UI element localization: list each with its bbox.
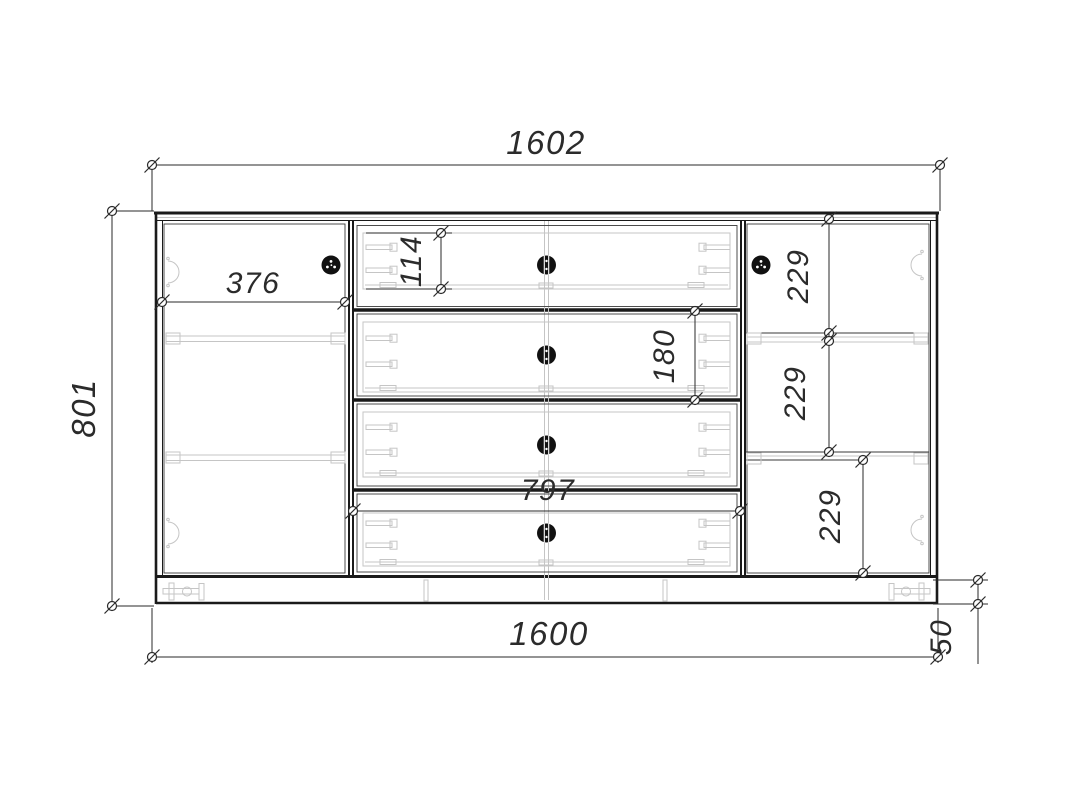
plinth-and-legs bbox=[163, 580, 930, 601]
drawer-knob bbox=[537, 436, 556, 455]
dimension-overall-width-bottom: 1600 bbox=[145, 608, 946, 665]
dim-label-plinth-height: 50 bbox=[925, 619, 958, 655]
drawer-knob bbox=[537, 524, 556, 543]
door-knob bbox=[752, 256, 771, 275]
left-shelf-bottom bbox=[166, 452, 345, 463]
dimension-top-drawer-box-height: 114 bbox=[366, 226, 452, 297]
dimension-right-gap-middle: 229 bbox=[779, 333, 837, 460]
dim-label-second-drawer-height: 180 bbox=[648, 329, 681, 384]
hinge-icon bbox=[911, 250, 923, 280]
hinge-icon bbox=[911, 515, 923, 545]
dim-label-right-gap-middle: 229 bbox=[779, 366, 812, 422]
dimension-overall-width-top: 1602 bbox=[145, 124, 948, 211]
leg-leveler-right bbox=[889, 583, 930, 600]
dim-label-overall-width-top: 1602 bbox=[506, 124, 585, 161]
dim-label-drawer-section-width: 797 bbox=[521, 474, 576, 507]
plinth-supports bbox=[424, 580, 667, 601]
furniture-technical-drawing: 1602 801 1600 376 114 180 229 bbox=[0, 0, 1067, 800]
door-knob bbox=[322, 256, 341, 275]
dimension-right-gap-bottom: 229 bbox=[814, 453, 871, 581]
hinge-icon bbox=[167, 518, 179, 548]
dimension-overall-height-left: 801 bbox=[65, 204, 154, 614]
dim-label-top-drawer-box-height: 114 bbox=[395, 235, 428, 287]
dimension-left-door-width: 376 bbox=[155, 267, 353, 310]
dim-label-overall-height: 801 bbox=[65, 378, 102, 438]
right-shelf-bottom bbox=[746, 452, 929, 464]
dim-label-right-gap-top: 229 bbox=[782, 249, 815, 305]
drawing-canvas: 1602 801 1600 376 114 180 229 bbox=[0, 0, 1067, 800]
left-shelf-top bbox=[166, 333, 345, 344]
dimension-right-gap-top: 229 bbox=[782, 212, 837, 341]
right-shelf-top bbox=[746, 333, 929, 344]
leg-leveler-left bbox=[163, 583, 204, 600]
dim-label-right-gap-bottom: 229 bbox=[814, 489, 847, 545]
hinge-icon bbox=[167, 257, 179, 287]
dimension-drawer-section-width: 797 bbox=[346, 474, 748, 519]
dim-label-left-door-width: 376 bbox=[226, 267, 281, 300]
dim-label-overall-width-bottom: 1600 bbox=[509, 615, 588, 652]
dimension-plinth-height: 50 bbox=[925, 573, 988, 665]
drawer-knob bbox=[537, 256, 556, 275]
drawer-knob bbox=[537, 346, 556, 365]
